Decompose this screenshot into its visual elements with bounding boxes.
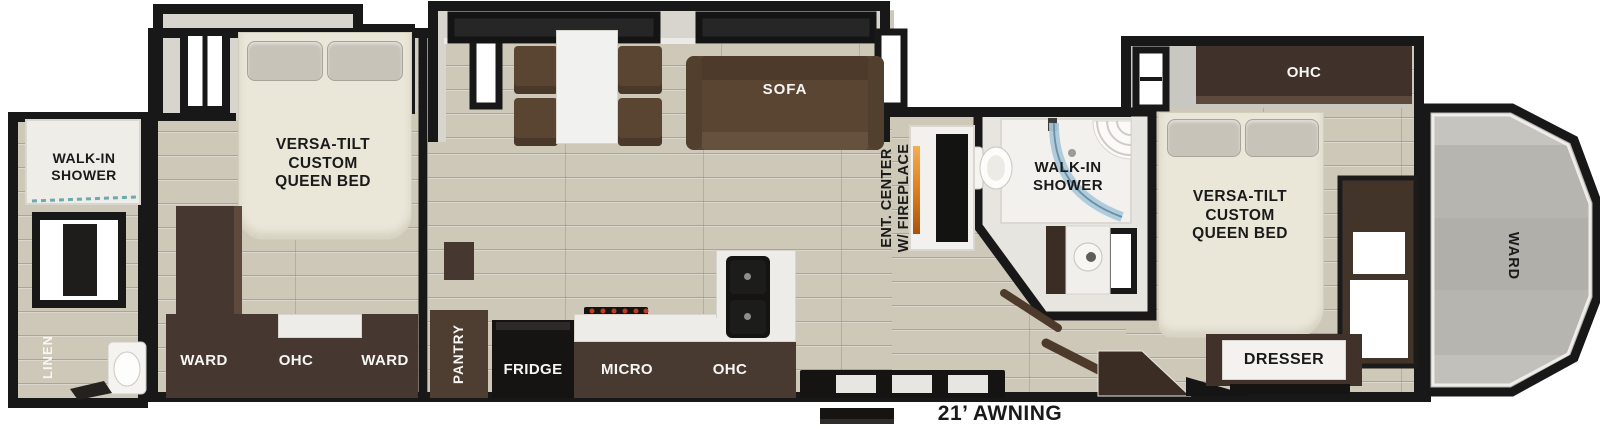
dinette-chair: [514, 46, 558, 94]
ward-cap-label: WARD: [1503, 216, 1521, 296]
faucet: [744, 313, 751, 320]
fridge-label: FRIDGE: [492, 360, 574, 380]
rear-toilet: [108, 342, 146, 394]
front-bedroom-top-window: [1136, 50, 1166, 108]
ent-center: [910, 126, 974, 250]
sofa-seat-edge: [702, 132, 868, 150]
front-ohc-label: OHC: [1254, 62, 1354, 84]
sofa-back: [700, 56, 870, 80]
linen-label: LINEN: [39, 317, 57, 397]
living-window-left: [473, 34, 499, 106]
vanity: [1046, 226, 1110, 294]
entry-landing: [800, 370, 1005, 398]
faucet: [744, 273, 751, 280]
sofa-label: SOFA: [735, 80, 835, 100]
step-tread: [836, 375, 876, 393]
pantry-label: PANTRY: [451, 314, 467, 394]
ent-center-label: ENT. CENTER W/ FIREPLACE: [878, 132, 914, 264]
dinette-chair: [514, 98, 558, 146]
bedroom-steps-ramp: [1098, 351, 1190, 396]
living-slide-window-2: [699, 15, 873, 40]
vanity-counter: [278, 314, 362, 338]
ohc-label: OHC: [258, 350, 334, 372]
step-tread: [948, 375, 988, 393]
pillow: [247, 41, 323, 81]
micro-label: MICRO: [582, 359, 672, 381]
rear-shower-label: WALK-IN SHOWER: [22, 146, 146, 188]
outside-step: [820, 408, 894, 424]
rear-bedroom-window-left: [184, 32, 226, 110]
pillow: [1245, 119, 1319, 157]
front-bedroom-ohc: OHC: [1196, 46, 1412, 104]
sofa: SOFA: [686, 56, 884, 150]
dresser: DRESSER: [1206, 334, 1362, 386]
ward-right-label: WARD: [352, 350, 418, 372]
awning-label: 21’ AWNING: [920, 400, 1080, 427]
rear-bed-label: VERSA-TILT CUSTOM QUEEN BED: [243, 132, 403, 196]
mid-bath-window: [1108, 231, 1134, 291]
kitchen-sink: [726, 256, 770, 338]
front-bed-label: VERSA-TILT CUSTOM QUEEN BED: [1150, 184, 1330, 248]
ward-left-label: WARD: [166, 350, 242, 372]
kitchen-lower-cabinets: MICRO OHC: [574, 342, 796, 398]
floorplan: WARD OHC WARD SOFA PANTRY FRIDGE MICRO O…: [0, 0, 1600, 428]
pillow: [1167, 119, 1241, 157]
mid-shower-label: WALK-IN SHOWER: [1002, 156, 1134, 198]
pillow: [327, 41, 403, 81]
dresser-mat: [1230, 384, 1350, 394]
bath-mat: [70, 381, 112, 400]
dinette-table: [556, 30, 618, 144]
sofa-arm: [686, 56, 702, 150]
fireplace-glow: [913, 146, 920, 234]
pantry: PANTRY: [430, 310, 488, 398]
living-slide-window-1: [451, 15, 657, 40]
wall-cabinet: [444, 242, 474, 280]
tv: [936, 134, 968, 242]
step-tread: [892, 375, 932, 393]
dinette-chair: [618, 46, 662, 94]
rear-bath-window: [36, 216, 122, 304]
dresser-label: DRESSER: [1223, 350, 1345, 370]
dresser-top: DRESSER: [1222, 340, 1346, 380]
dinette-chair: [618, 98, 662, 146]
fridge: FRIDGE: [492, 320, 574, 398]
kitchen-ohc-label: OHC: [690, 359, 770, 381]
fridge-top-edge: [496, 322, 570, 330]
rear-bedroom-side-cabinet: [176, 206, 242, 314]
rear-bedroom-cabinet-row: WARD OHC WARD: [166, 314, 418, 398]
